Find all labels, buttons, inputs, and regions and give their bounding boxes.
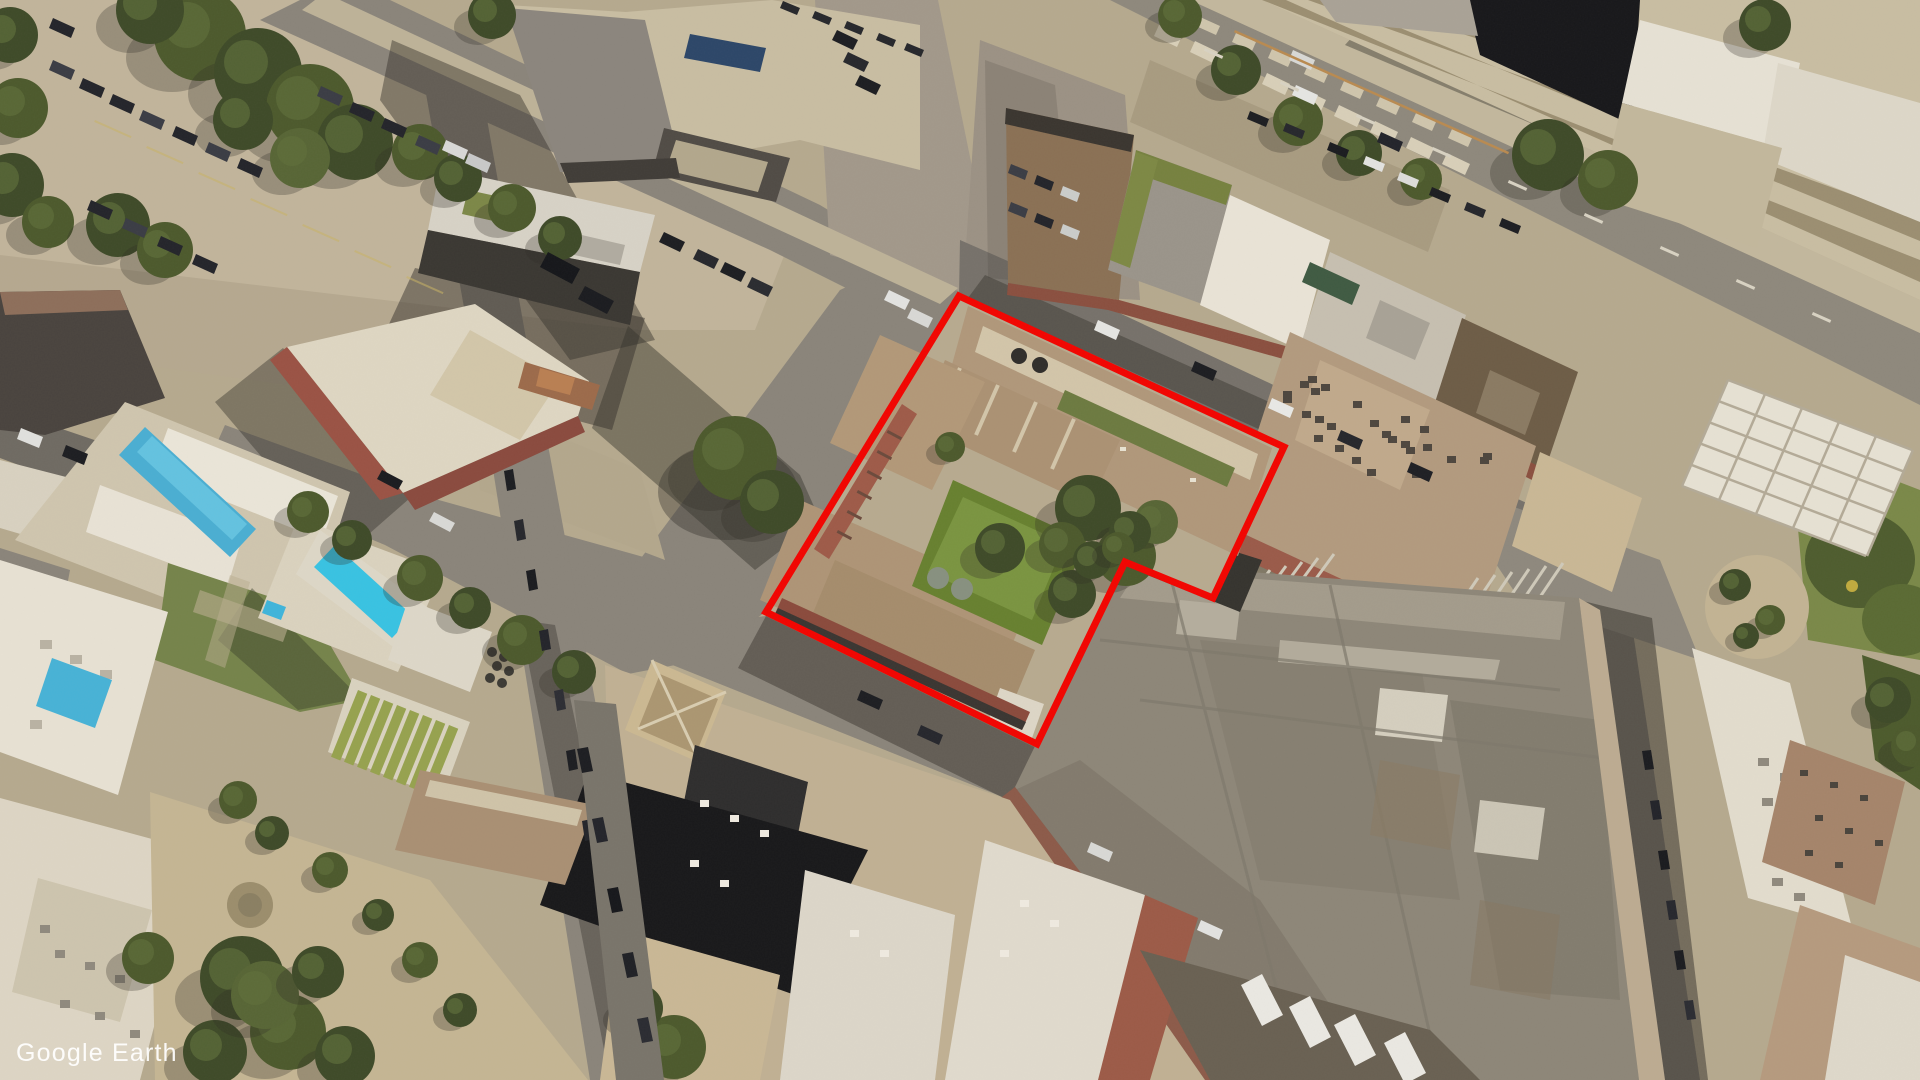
svg-text:Google Earth: Google Earth: [16, 1039, 178, 1067]
